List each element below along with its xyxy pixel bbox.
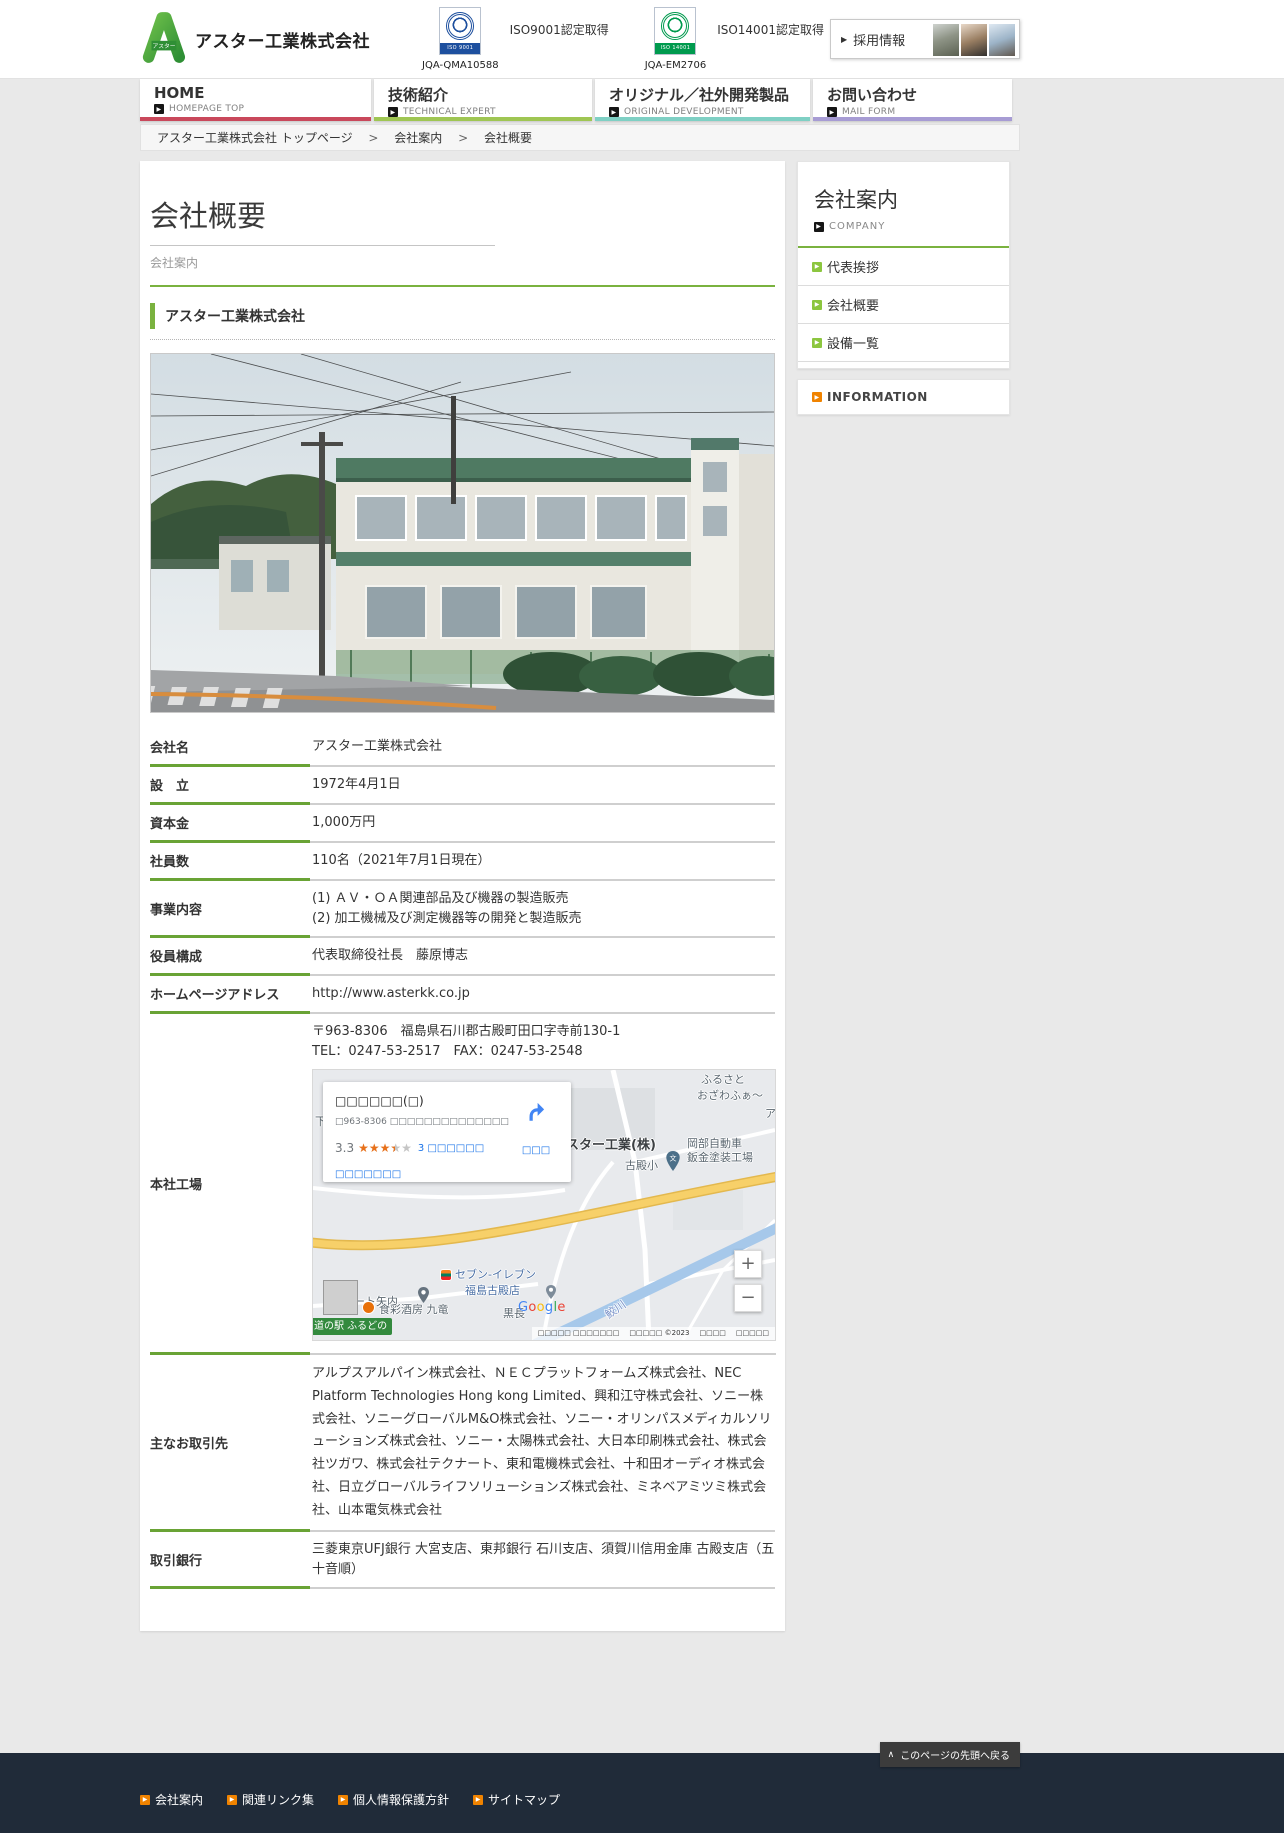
iso9001-code: JQA-QMA10588 bbox=[422, 60, 499, 71]
map-rating-value: 3.3 bbox=[335, 1139, 354, 1157]
sidebar-title: 会社案内 bbox=[814, 184, 993, 214]
page-title: 会社概要 bbox=[150, 193, 495, 246]
breadcrumb-current: 会社概要 bbox=[484, 131, 532, 145]
map-report-error-link[interactable]: □□□□□ bbox=[736, 1328, 769, 1339]
directions-icon bbox=[523, 1098, 549, 1131]
table-row: ホームページアドレス http://www.asterkk.co.jp bbox=[150, 976, 775, 1014]
table-row: 役員構成 代表取締役社長 藤原博志 bbox=[150, 938, 775, 976]
head-office-tel-fax: TEL：0247-53-2517 FAX：0247-53-2548 bbox=[312, 1042, 776, 1062]
map-label-michinoeki: 道の駅 ふるどの bbox=[312, 1318, 392, 1335]
table-row: 設 立 1972年4月1日 bbox=[150, 767, 775, 805]
recruit-button[interactable]: ▶ 採用情報 bbox=[830, 19, 1020, 59]
arrow-icon: ▶ bbox=[812, 338, 822, 348]
recruit-arrow-icon: ▶ bbox=[841, 35, 847, 44]
map-label-restaurant: 食彩酒房 九竜 bbox=[379, 1302, 449, 1319]
homepage-url: http://www.asterkk.co.jp bbox=[310, 976, 775, 1014]
nav-arrow-icon: ▶ bbox=[154, 104, 164, 114]
banks: 三菱東京UFJ銀行 大宮支店、東邦銀行 石川支店、須賀川信用金庫 古殿支店（五十… bbox=[310, 1532, 775, 1589]
company-overview-table: 会社名 アスター工業株式会社 設 立 1972年4月1日 資本金 1,000万円… bbox=[150, 729, 775, 1589]
map-directions-button[interactable]: □□□ bbox=[509, 1092, 563, 1174]
arrow-icon: ▶ bbox=[227, 1795, 237, 1805]
restaurant-icon bbox=[363, 1302, 374, 1313]
map-label-seven-eleven: セブン-イレブン bbox=[455, 1267, 536, 1284]
map-reviews-link[interactable]: 3 □□□□□□ bbox=[418, 1141, 484, 1156]
map-card-title: □□□□□□(□) bbox=[335, 1092, 509, 1110]
building-photo bbox=[150, 353, 775, 713]
company-name: アスター工業株式会社 bbox=[195, 27, 370, 52]
breadcrumb-company[interactable]: 会社案内 bbox=[394, 131, 442, 145]
map-label-okabe-2: 鈑金塗装工場 bbox=[687, 1150, 753, 1167]
map-label-partial-right: ア bbox=[765, 1106, 776, 1123]
breadcrumb: アスター工業株式会社 トップページ > 会社案内 > 会社概要 bbox=[140, 124, 1020, 151]
sidebar-company-arrow-icon: ▶ bbox=[814, 222, 824, 232]
table-row: 事業内容 (1) ＡＶ・ＯＡ関連部品及び機器の製造販売 (2) 加工機械及び測定… bbox=[150, 881, 775, 938]
svg-text:文: 文 bbox=[670, 1153, 677, 1162]
seven-eleven-icon bbox=[441, 1270, 451, 1280]
sidebar-information[interactable]: ▶ INFORMATION bbox=[797, 379, 1010, 415]
breadcrumb-home[interactable]: アスター工業株式会社 トップページ bbox=[157, 131, 353, 145]
map-label-furusato: ふるさと bbox=[701, 1072, 745, 1089]
map-keyboard-shortcuts[interactable]: □□□□□ □□□□□□□ bbox=[538, 1328, 620, 1339]
sidebar-item-equipment-list[interactable]: ▶設備一覧 bbox=[798, 324, 1009, 362]
global-nav: HOME ▶HOMEPAGE TOP 技術紹介 ▶TECHNICAL EXPER… bbox=[140, 79, 1020, 121]
nav-contact[interactable]: お問い合わせ ▶MAIL FORM bbox=[813, 79, 1012, 121]
nav-arrow-icon: ▶ bbox=[388, 107, 398, 117]
iso14001-code: JQA-EM2706 bbox=[645, 60, 706, 71]
map-label-ozawa: おざわふぁ～ bbox=[697, 1088, 763, 1105]
iso14001-badge-icon: ISO 14001 bbox=[654, 7, 696, 55]
head-office-address: 〒963-8306 福島県石川郡古殿町田口字寺前130-1 bbox=[312, 1022, 776, 1042]
map-zoom-out-button[interactable]: − bbox=[734, 1284, 762, 1312]
iso9001-label: ISO9001認定取得 bbox=[510, 21, 609, 38]
footer-link-related-links[interactable]: ▶関連リンク集 bbox=[227, 1791, 314, 1808]
sidebar: 会社案内 ▶COMPANY ▶代表挨拶 ▶会社概要 ▶設備一覧 ▶ INFORM… bbox=[797, 161, 1010, 415]
arrow-icon: ▶ bbox=[812, 300, 822, 310]
site-header: アスター アスター工業株式会社 ISO 9001 JQA-QMA10588 IS… bbox=[0, 0, 1284, 79]
map-info-card: □□□□□□(□) □963-8306 □□□□□□□□□□□□□□□□□-□ … bbox=[323, 1082, 571, 1182]
sidebar-item-company-overview[interactable]: ▶会社概要 bbox=[798, 286, 1009, 324]
main-clients: アルプスアルパイン株式会社、ＮＥＣプラットフォームズ株式会社、NEC Platf… bbox=[310, 1355, 775, 1532]
recruit-photo-2 bbox=[961, 24, 987, 56]
logo-a-icon: アスター bbox=[140, 11, 186, 67]
map-maptype-thumbnail[interactable] bbox=[323, 1280, 358, 1315]
main-content: 会社概要 会社案内 アスター工業株式会社 bbox=[140, 161, 785, 1631]
map-zoom-in-button[interactable]: + bbox=[734, 1250, 762, 1278]
arrow-icon: ▶ bbox=[140, 1795, 150, 1805]
school-pin-icon: 文 bbox=[665, 1150, 681, 1179]
map-card-address: □963-8306 □□□□□□□□□□□□□□□□□-□ bbox=[335, 1116, 509, 1130]
footer-link-sitemap[interactable]: ▶サイトマップ bbox=[473, 1791, 560, 1808]
arrow-icon: ▶ bbox=[473, 1795, 483, 1805]
sidebar-item-greeting[interactable]: ▶代表挨拶 bbox=[798, 248, 1009, 286]
recruit-photos bbox=[933, 24, 1015, 54]
google-logo: Google bbox=[518, 1298, 566, 1318]
green-divider bbox=[150, 285, 775, 287]
iso9001-certification: ISO 9001 JQA-QMA10588 ISO9001認定取得 bbox=[422, 7, 609, 71]
chevron-up-icon: ∧ bbox=[888, 1750, 895, 1760]
footer-link-company[interactable]: ▶会社案内 bbox=[140, 1791, 203, 1808]
map-terms-link[interactable]: □□□□ bbox=[699, 1328, 725, 1339]
recruit-photo-3 bbox=[989, 24, 1015, 56]
table-row: 取引銀行 三菱東京UFJ銀行 大宮支店、東邦銀行 石川支店、須賀川信用金庫 古殿… bbox=[150, 1532, 775, 1589]
map-label-school: 古殿小 bbox=[625, 1158, 658, 1175]
google-map[interactable]: ふるさと おざわふぁ～ ア 下 古殿小 文 岡部自動車 鈑金塗装工場 bbox=[312, 1069, 776, 1341]
map-rating-stars: ★★★★★★ bbox=[358, 1139, 412, 1159]
svg-text:アスター: アスター bbox=[152, 42, 175, 50]
map-larger-map-link[interactable]: □□□□□□□ bbox=[335, 1167, 401, 1182]
back-to-top-button[interactable]: ∧ このページの先頭へ戻る bbox=[880, 1742, 1020, 1767]
table-row: 資本金 1,000万円 bbox=[150, 805, 775, 843]
footer-link-privacy-policy[interactable]: ▶個人情報保護方針 bbox=[338, 1791, 449, 1808]
nav-original-products[interactable]: オリジナル／社外開発製品 ▶ORIGINAL DEVELOPMENT bbox=[595, 79, 810, 121]
iso14001-certification: ISO 14001 JQA-EM2706 ISO14001認定取得 bbox=[645, 7, 824, 71]
company-logo[interactable]: アスター アスター工業株式会社 bbox=[140, 11, 370, 67]
table-row: 社員数 110名（2021年7月1日現在） bbox=[150, 843, 775, 881]
page-subtitle: 会社案内 bbox=[150, 254, 775, 271]
arrow-icon: ▶ bbox=[338, 1795, 348, 1805]
nav-arrow-icon: ▶ bbox=[609, 107, 619, 117]
map-label-seven-branch: 福島古殿店 bbox=[465, 1283, 520, 1300]
section-heading: アスター工業株式会社 bbox=[150, 303, 775, 329]
information-arrow-icon: ▶ bbox=[812, 392, 822, 402]
table-row: 会社名 アスター工業株式会社 bbox=[150, 729, 775, 767]
arrow-icon: ▶ bbox=[812, 262, 822, 272]
nav-arrow-icon: ▶ bbox=[827, 107, 837, 117]
nav-technical[interactable]: 技術紹介 ▶TECHNICAL EXPERT bbox=[374, 79, 592, 121]
table-row: 主なお取引先 アルプスアルパイン株式会社、ＮＥＣプラットフォームズ株式会社、NE… bbox=[150, 1355, 775, 1532]
map-attribution: □□□□□ □□□□□□□ □□□□□ ©2023 □□□□ □□□□□ bbox=[532, 1327, 775, 1340]
recruit-photo-1 bbox=[933, 24, 959, 56]
iso9001-badge-icon: ISO 9001 bbox=[439, 7, 481, 55]
table-row-head-office: 本社工場 〒963-8306 福島県石川郡古殿町田口字寺前130-1 TEL：0… bbox=[150, 1014, 775, 1355]
iso14001-label: ISO14001認定取得 bbox=[717, 21, 824, 38]
directions-label: □□□ bbox=[522, 1143, 550, 1158]
site-footer: ∧ このページの先頭へ戻る ▶会社案内 ▶関連リンク集 ▶個人情報保護方針 ▶サ… bbox=[0, 1753, 1284, 1833]
map-data-copyright: □□□□□ ©2023 bbox=[629, 1328, 689, 1339]
nav-home[interactable]: HOME ▶HOMEPAGE TOP bbox=[140, 79, 371, 121]
